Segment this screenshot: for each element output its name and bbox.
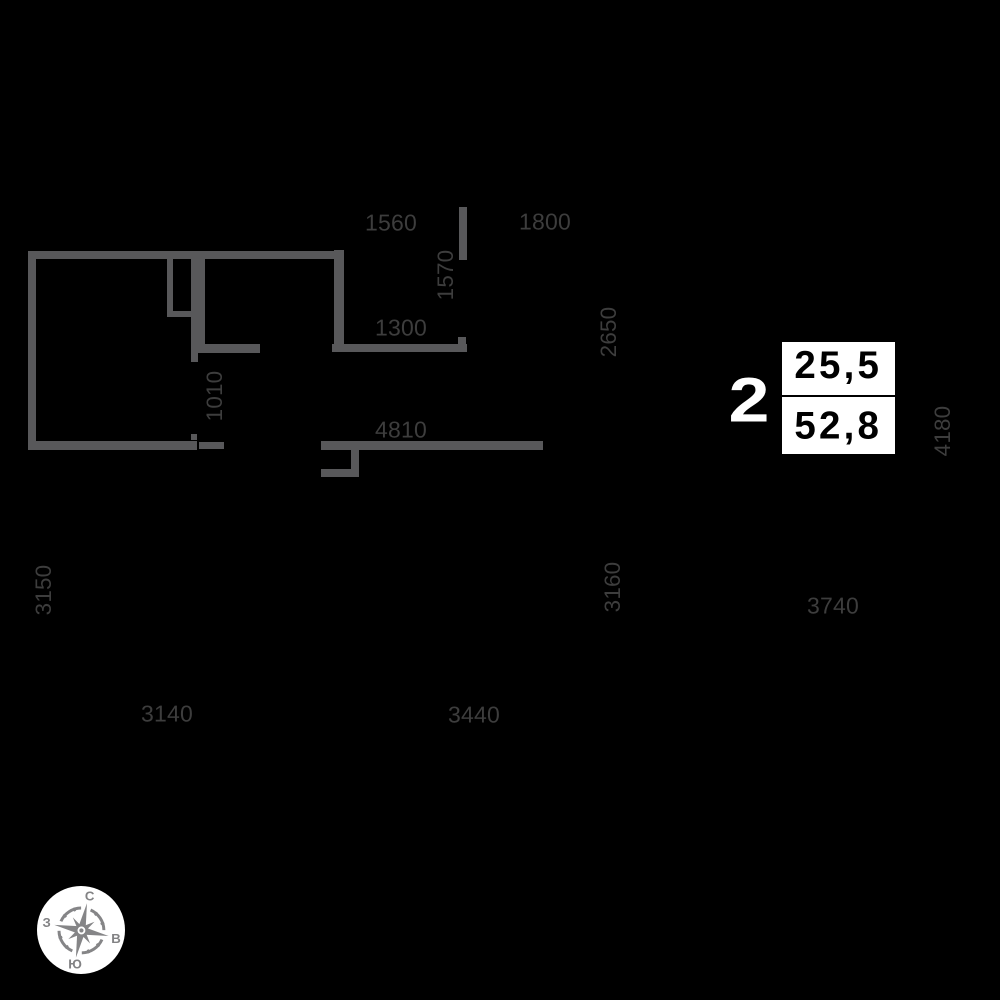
svg-text:Ю: Ю bbox=[68, 956, 82, 971]
svg-text:З: З bbox=[42, 915, 50, 930]
svg-text:В: В bbox=[111, 931, 121, 946]
svg-text:С: С bbox=[85, 888, 95, 903]
